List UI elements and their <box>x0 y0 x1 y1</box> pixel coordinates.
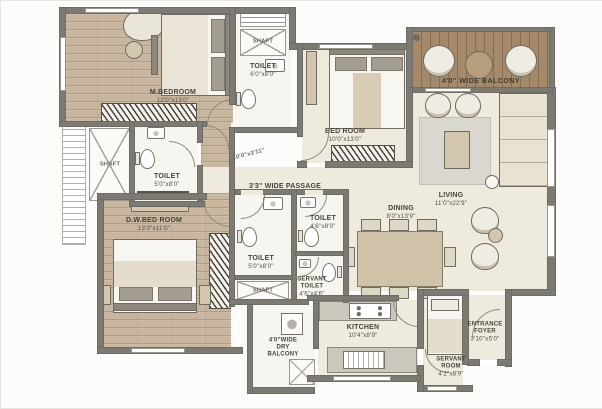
dw-bed-blanket <box>114 261 196 287</box>
nightstand <box>199 285 211 305</box>
wall-segment <box>406 27 554 32</box>
washing-machine <box>281 313 303 335</box>
label-passage-dim: 10'0"x3'11" <box>232 148 265 163</box>
wardrobe-m-bedroom <box>101 103 197 123</box>
wall-segment <box>549 27 555 91</box>
label-passage: 3'3" WIDE PASSAGE <box>249 183 321 191</box>
wc <box>242 227 257 247</box>
label-shaft-mid: SHAFT <box>253 288 273 295</box>
room-label-toilet-common: TOILET5'0"x8'0" <box>248 255 274 271</box>
wall-segment <box>497 359 512 366</box>
pillow <box>431 299 459 311</box>
wall-segment <box>406 87 413 168</box>
label-shaft-left: SHAFT <box>100 162 120 169</box>
wall-segment <box>297 161 307 168</box>
sofa <box>499 93 551 187</box>
wall-segment <box>97 193 104 354</box>
washbasin <box>147 127 165 139</box>
coffee-table <box>444 131 470 169</box>
balcony-chair <box>423 45 455 77</box>
servant-bed-blanket <box>428 319 462 353</box>
room-label-kitchen: KITCHEN10'4"x8'9" <box>347 324 380 340</box>
pillow <box>211 57 225 91</box>
window <box>85 8 139 13</box>
balcony-table <box>465 51 493 79</box>
wall-segment <box>547 87 556 296</box>
floor-plan-canvas: M.BEDROOM12'0"x13'0" TOILET6'0"x8'0" BED… <box>0 0 602 409</box>
wall-segment <box>417 289 469 296</box>
window <box>131 348 185 353</box>
room-label-toilet-dw: TOILET5'0"x8'0" <box>154 173 180 189</box>
pillow <box>119 287 153 301</box>
dining-table <box>357 231 443 287</box>
wall-segment <box>313 299 319 349</box>
wardrobe-dw-bedroom <box>209 233 231 309</box>
room-label-dw-bedroom: D.W.BED ROOM13'0"x11'0" <box>126 217 182 233</box>
wc <box>140 149 155 169</box>
window <box>333 376 391 381</box>
wall-segment <box>343 189 349 303</box>
entrance-threshold <box>480 360 497 365</box>
wall-segment <box>247 387 315 394</box>
room-label-bed-room: BED ROOM10'0"x13'0" <box>325 128 365 144</box>
room-label-servant-toilet: SERVANTTOILET 4'6"x4'6" <box>297 276 327 297</box>
room-label-balcony: 4'0" WIDE BALCONY <box>442 78 520 86</box>
room-label-dining: DINING8'0"x13'9" <box>386 205 415 221</box>
wall-segment <box>229 189 235 307</box>
dining-chair <box>361 219 381 231</box>
window <box>425 88 471 92</box>
flower-stool <box>125 41 143 59</box>
wall-segment <box>505 289 512 367</box>
floor-plan: M.BEDROOM12'0"x13'0" TOILET6'0"x8'0" BED… <box>1 1 602 408</box>
wc <box>241 89 256 109</box>
armchair <box>471 243 499 270</box>
wall-segment <box>297 43 303 137</box>
wall-segment <box>97 193 207 200</box>
window <box>427 386 457 391</box>
wall-segment <box>229 299 309 305</box>
planter <box>413 34 420 41</box>
window <box>547 205 555 257</box>
dw-bed-headboard <box>113 303 197 311</box>
wall-segment <box>505 289 556 296</box>
pillow <box>335 57 367 71</box>
pillow <box>158 287 192 301</box>
window <box>547 129 555 187</box>
wall-segment <box>291 189 297 303</box>
side-table <box>485 175 499 189</box>
wall-segment <box>197 121 203 143</box>
wardrobe-bed-room <box>331 145 395 162</box>
washbasin <box>263 197 283 210</box>
room-label-toilet-master: TOILET6'0"x8'0" <box>250 63 276 79</box>
room-label-servant-room: SERVANTROOM 4'2"x8'9" <box>436 356 466 377</box>
window <box>60 37 66 91</box>
wall-segment <box>325 161 413 168</box>
wall-segment <box>235 275 293 280</box>
wall-segment <box>406 27 413 89</box>
pillow <box>371 57 403 71</box>
label-shaft-top: SHAFT <box>253 39 273 46</box>
armchair <box>455 93 481 118</box>
dining-chair <box>444 247 456 267</box>
wall-segment <box>229 7 236 105</box>
wall-segment <box>247 301 253 394</box>
wc-tank <box>337 266 342 278</box>
ledge-toilet-master <box>240 12 286 27</box>
ledge-left <box>62 123 86 245</box>
wall-segment <box>417 289 424 349</box>
side-table <box>488 228 503 243</box>
room-label-living: LIVING11'0"x22'9" <box>435 192 467 208</box>
wall-segment <box>129 201 205 207</box>
room-label-dry-balcony: 4'0"WIDEDRY BALCONY <box>267 337 298 358</box>
pillow <box>211 19 225 53</box>
balcony-chair <box>505 45 537 77</box>
window <box>319 44 373 49</box>
wc-tank <box>298 230 303 242</box>
hob <box>349 303 391 319</box>
dining-chair <box>389 219 409 231</box>
bed-runner <box>353 73 381 128</box>
room-label-m-bedroom: M.BEDROOM12'0"x13'0" <box>150 89 196 105</box>
master-bed-blanket <box>162 15 208 95</box>
dresser <box>306 51 317 105</box>
armchair <box>425 93 451 118</box>
dining-chair <box>417 219 437 231</box>
wall-segment <box>229 127 303 133</box>
room-label-entrance-foyer: ENTRANCEFOYER 3'10"x5'0" <box>468 321 503 342</box>
bed-bench <box>151 35 158 75</box>
sink <box>343 351 385 369</box>
wall-segment <box>295 251 347 256</box>
room-label-toilet-bed2: TOILET4'6"x8'0" <box>310 215 336 231</box>
